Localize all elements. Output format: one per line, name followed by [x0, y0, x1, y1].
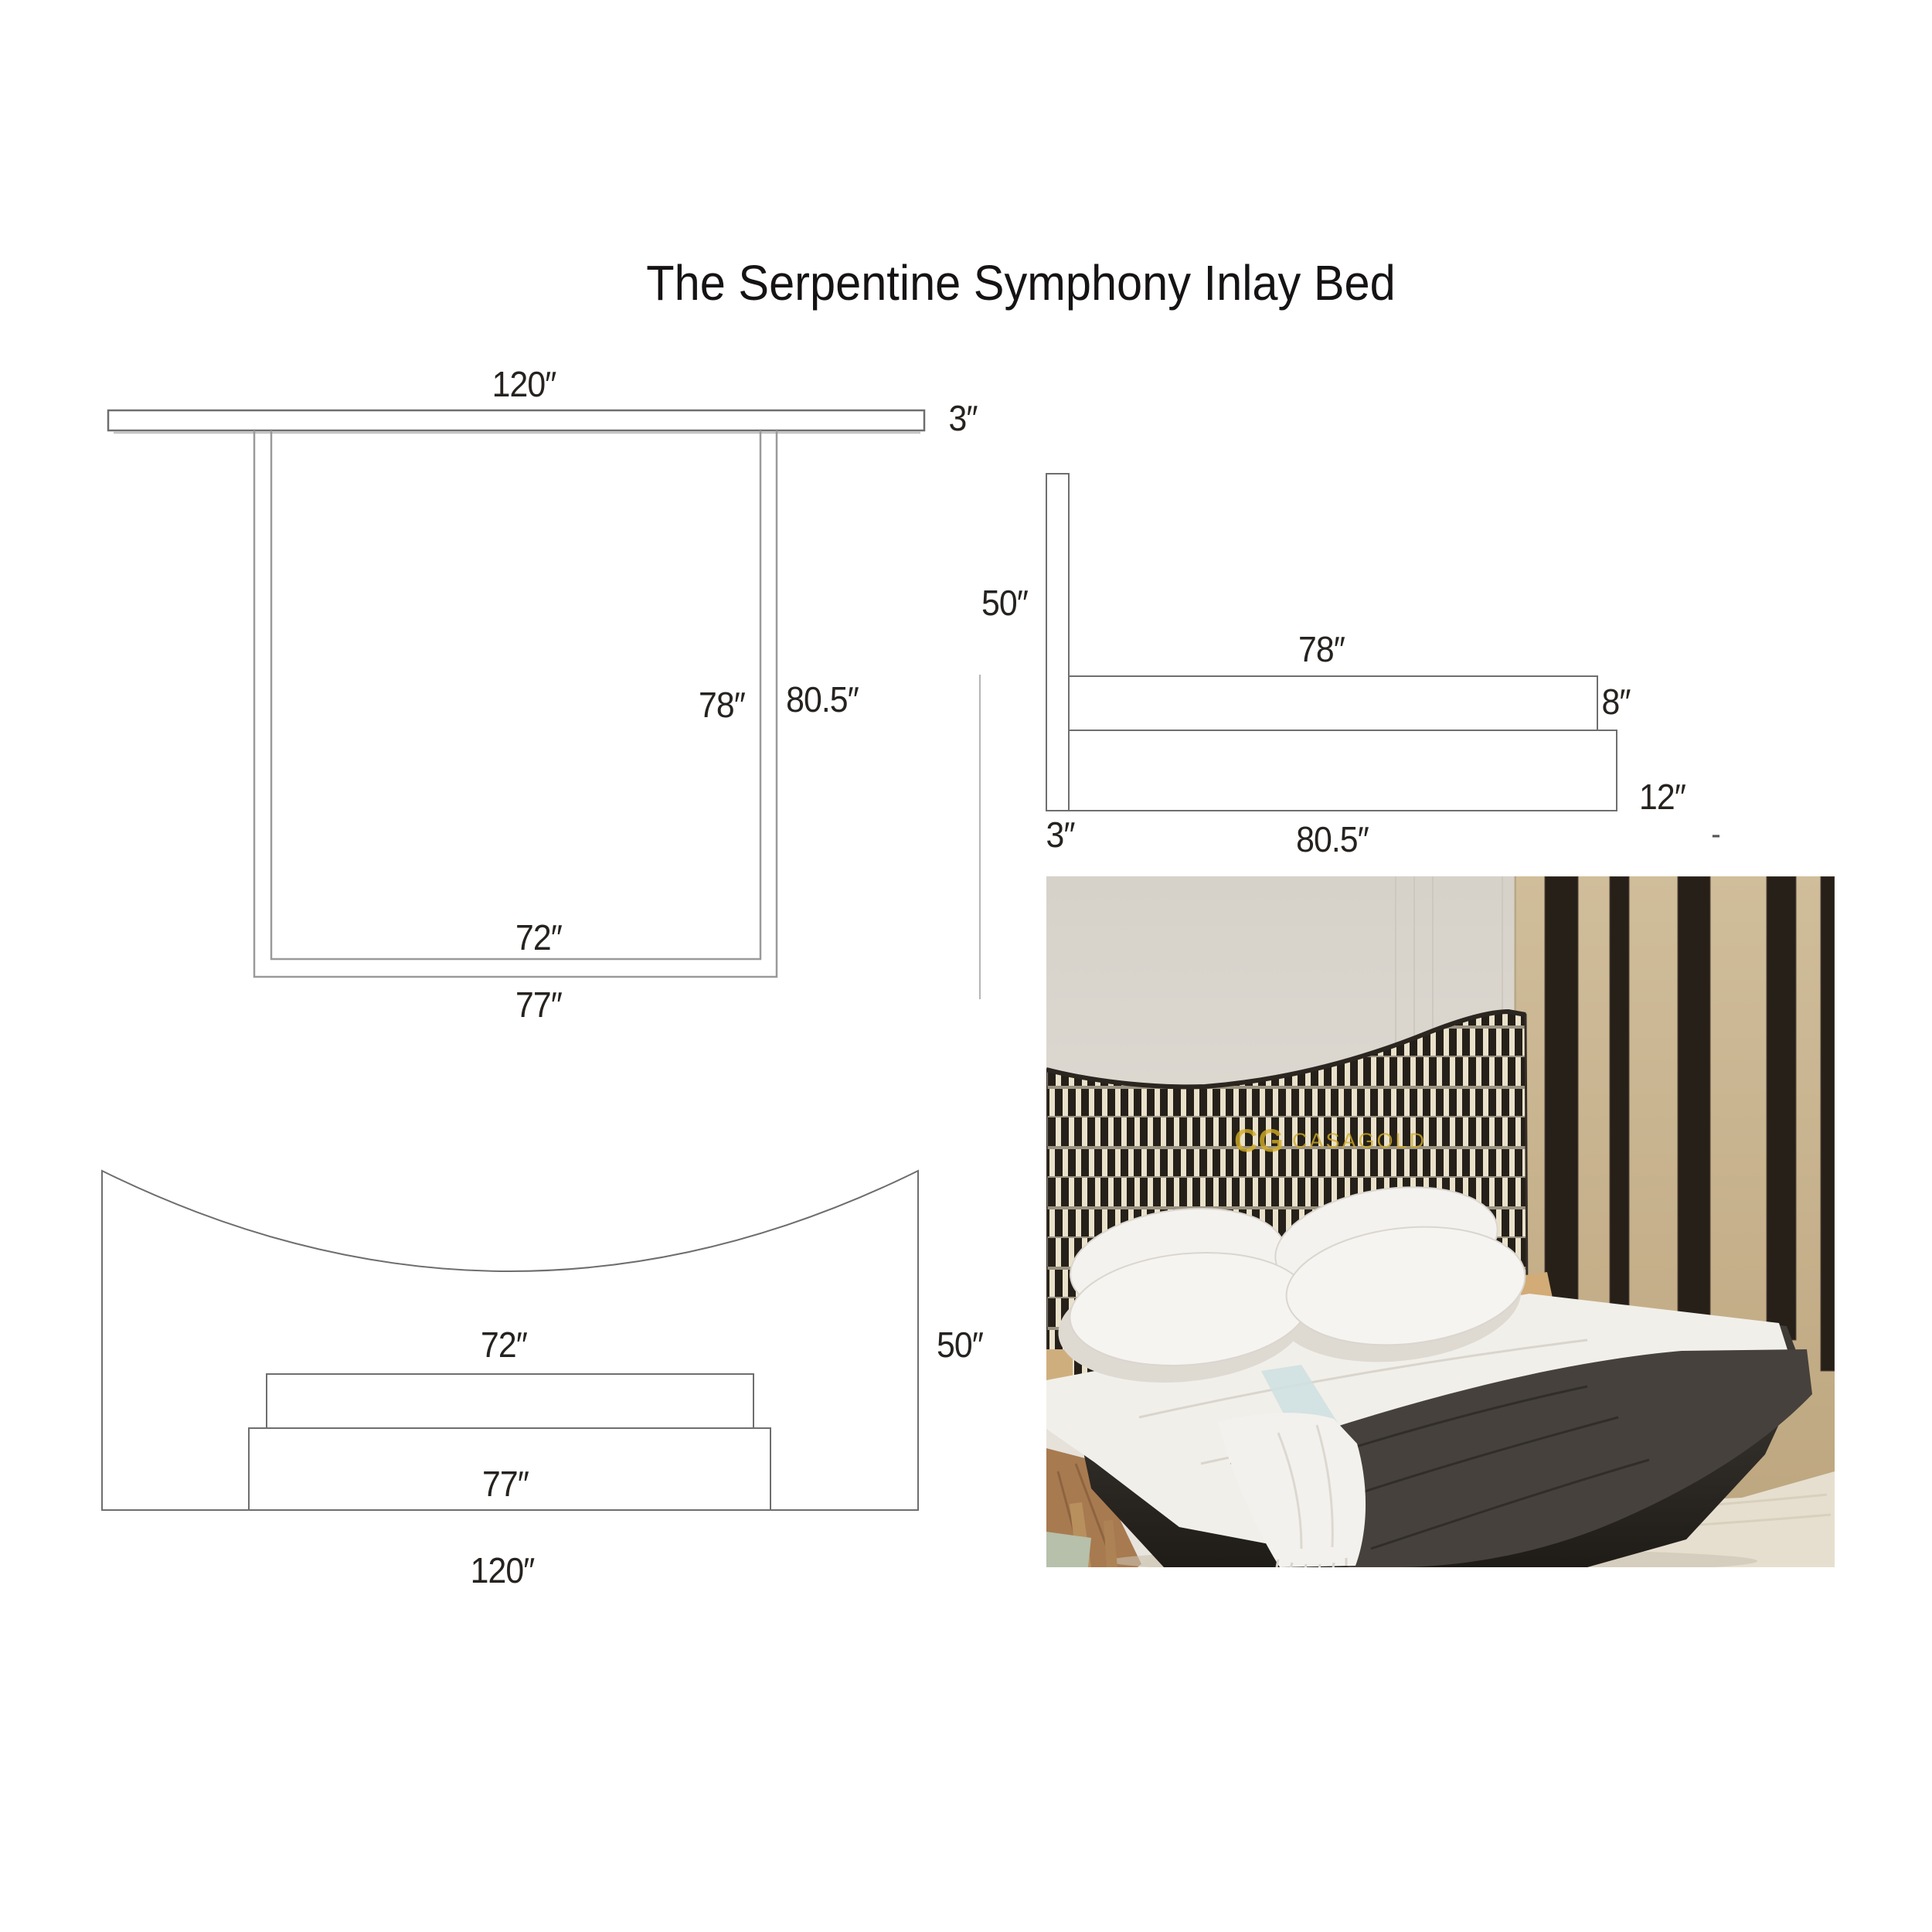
side-view-mattress-length-label: 78″ [1298, 628, 1345, 670]
side-view-stray-mark: - [1711, 818, 1719, 852]
chair-cushion [1046, 1532, 1091, 1567]
front-view-base-width-label: 77″ [482, 1463, 529, 1505]
top-view-headboard-thickness-label: 3″ [948, 397, 977, 439]
top-view-mattress-length-label: 78″ [699, 684, 745, 726]
front-view-mattress-width-label: 72″ [481, 1324, 527, 1366]
side-view-mattress [1069, 676, 1597, 730]
side-view-base-length-label: 80.5″ [1296, 818, 1369, 860]
top-view-headboard-bar [108, 410, 924, 430]
side-view-headboard-thickness-label: 3″ [1046, 814, 1074, 855]
front-view-mattress [267, 1374, 753, 1428]
bedroom-scene [1046, 876, 1835, 1567]
top-view-frame-inner [271, 430, 760, 959]
photo-watermark-brand: CASAGOLD [1292, 1129, 1427, 1153]
top-view-overall-length-label: 80.5″ [786, 679, 859, 720]
product-photo: CG CASAGOLD [1046, 876, 1835, 1567]
side-view-headboard-height-label: 50″ [981, 582, 1028, 624]
side-view-base-height-label: 12″ [1639, 776, 1685, 818]
side-view-platform [1069, 730, 1617, 811]
top-view-base-width-label: 77″ [515, 984, 562, 1026]
photo-watermark-monogram: CG [1234, 1122, 1284, 1159]
side-view-headboard [1046, 474, 1069, 811]
side-view-mattress-thickness-label: 8″ [1601, 681, 1630, 723]
top-view-mattress-width-label: 72″ [515, 917, 562, 958]
top-view-headboard-width-label: 120″ [492, 363, 556, 405]
photo-watermark: CG CASAGOLD [1234, 1122, 1427, 1159]
front-view-headboard-width-label: 120″ [471, 1549, 535, 1591]
front-view-headboard-height-label: 50″ [937, 1324, 983, 1366]
spec-sheet: The Serpentine Symphony Inlay Bed 120″ 3… [0, 0, 1932, 1932]
